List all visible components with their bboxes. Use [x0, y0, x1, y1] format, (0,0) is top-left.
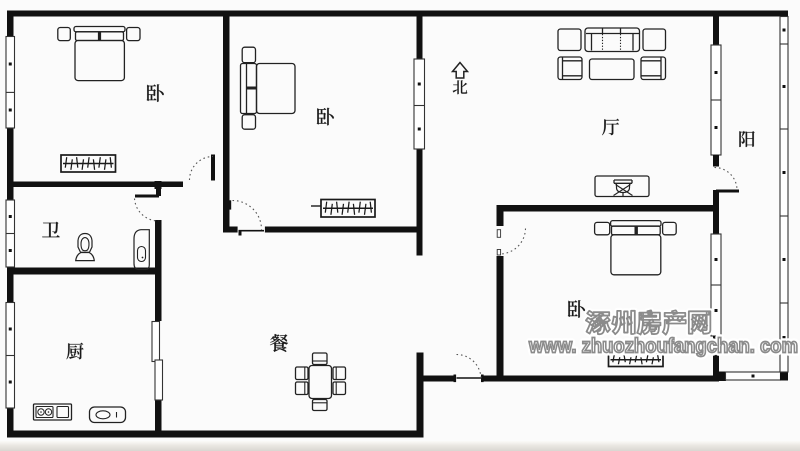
- svg-text:www. zhuozhoufangchan. com: www. zhuozhoufangchan. com: [528, 335, 798, 357]
